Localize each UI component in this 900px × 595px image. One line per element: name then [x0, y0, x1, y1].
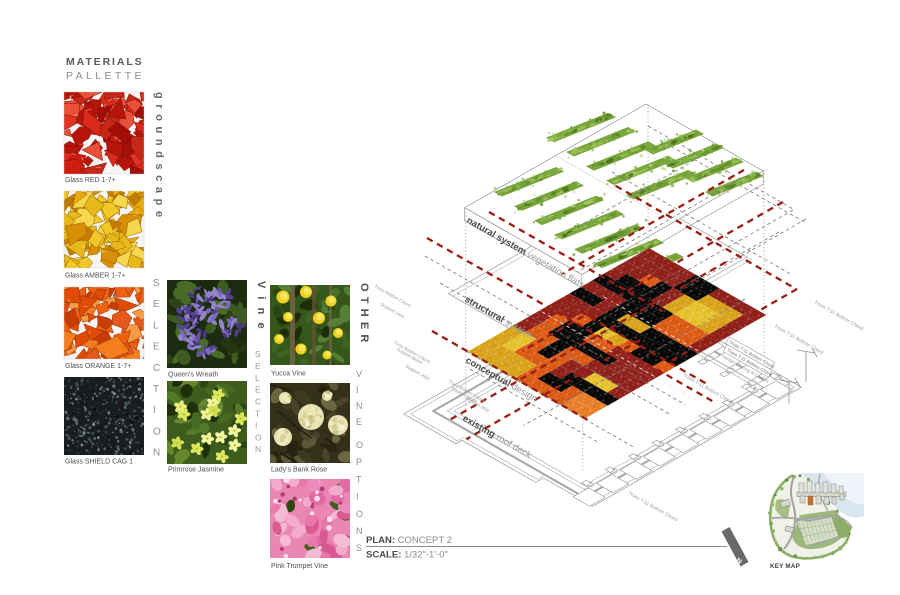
svg-text:Queen's Wreath: Queen's Wreath	[168, 372, 218, 379]
svg-text:Vine: Vine	[255, 281, 267, 337]
svg-text:groundscape: groundscape	[153, 92, 165, 223]
svg-text:Glass ORANGE 1-7+: Glass ORANGE 1-7+	[65, 363, 131, 370]
svg-text:PLAN: CONCEPT 2: PLAN: CONCEPT 2	[366, 535, 452, 546]
svg-text:Glass RED 1-7+: Glass RED 1-7+	[65, 177, 116, 184]
svg-text:Glass SHIELD CAG 1: Glass SHIELD CAG 1	[65, 459, 133, 466]
svg-text:KEY MAP: KEY MAP	[770, 563, 800, 570]
svg-text:Lady's Bank Rose: Lady's Bank Rose	[271, 467, 327, 474]
svg-text:PALLETTE: PALLETTE	[66, 70, 145, 82]
svg-text:SCALE: 1/32"-1'-0": SCALE: 1/32"-1'-0"	[366, 550, 448, 561]
svg-text:Primrose Jasmine: Primrose Jasmine	[168, 467, 224, 474]
svg-text:OTHER: OTHER	[358, 283, 370, 348]
svg-text:Glass AMBER 1-7+: Glass AMBER 1-7+	[65, 273, 126, 280]
svg-text:MATERIALS: MATERIALS	[66, 56, 144, 68]
svg-text:Pink Trumpet Vine: Pink Trumpet Vine	[271, 563, 328, 570]
svg-text:Yucca Vine: Yucca Vine	[271, 371, 306, 378]
